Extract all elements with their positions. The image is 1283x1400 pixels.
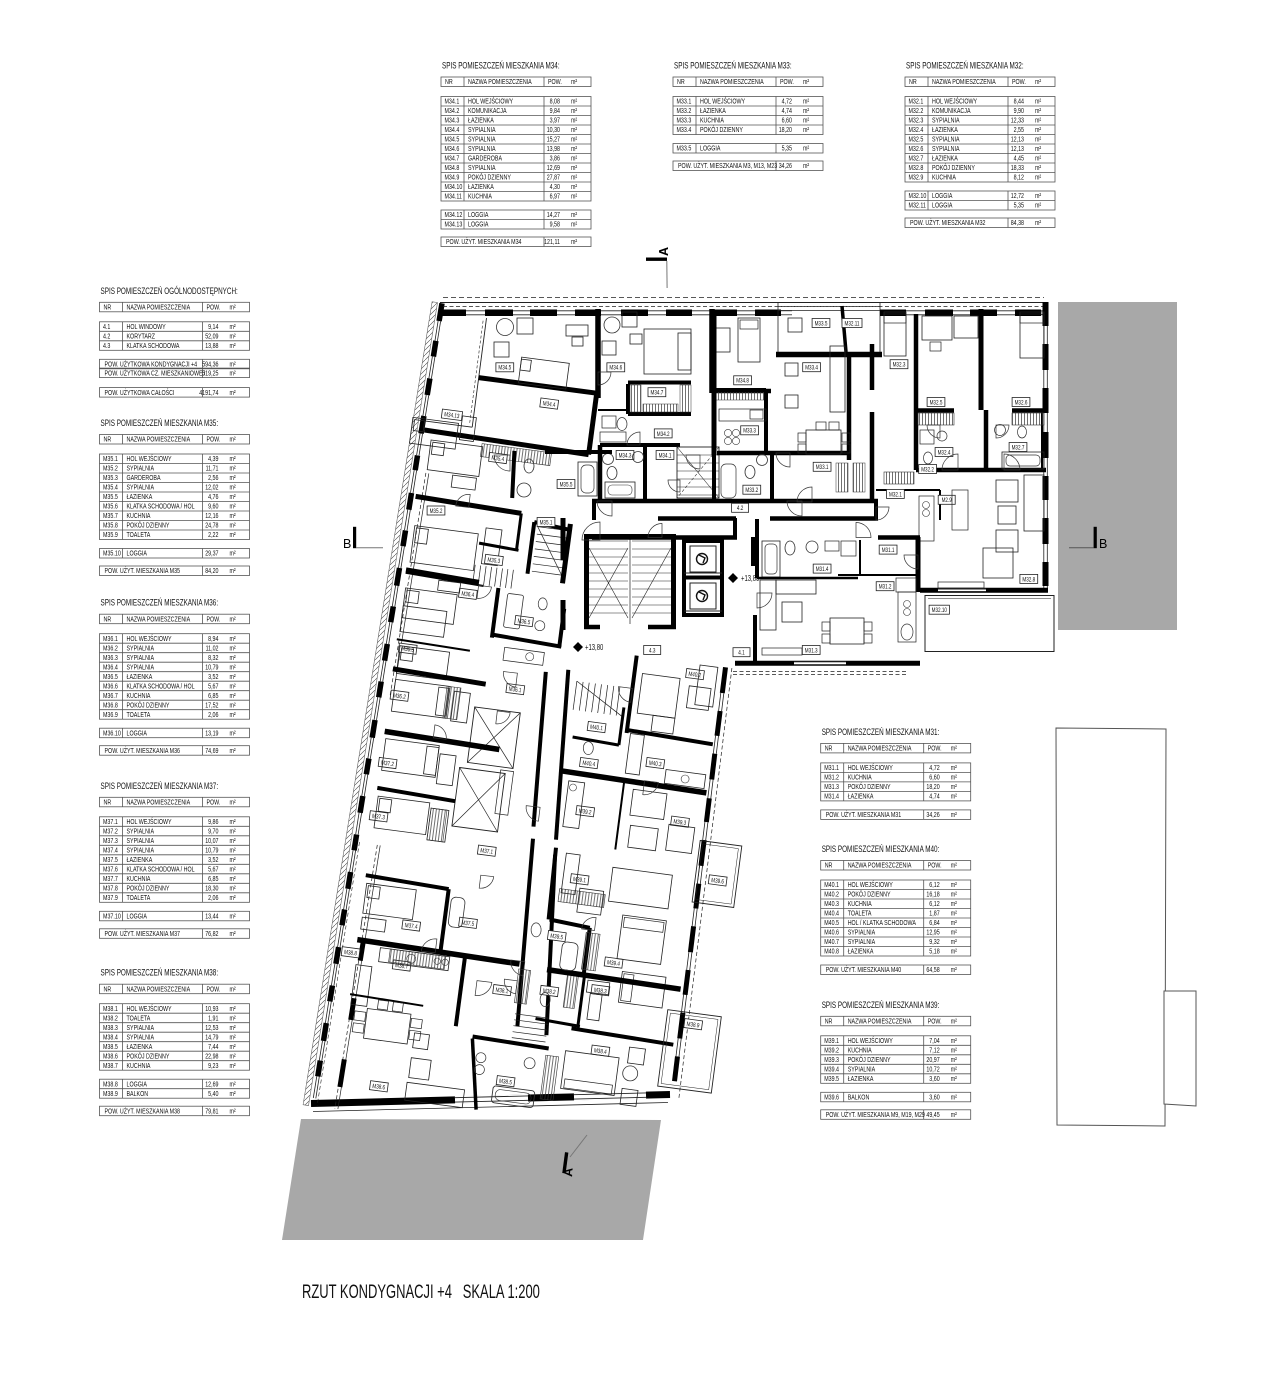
svg-text:BALKON: BALKON <box>848 1093 870 1102</box>
svg-text:RZUT KONDYGNACJI +4 SKALA 1:: RZUT KONDYGNACJI +4 SKALA 1:200 <box>302 1281 540 1303</box>
svg-text:M34.10: M34.10 <box>445 182 463 191</box>
svg-text:A: A <box>561 1167 576 1177</box>
svg-text:M32.4: M32.4 <box>938 449 951 456</box>
svg-text:M32.2: M32.2 <box>909 106 924 115</box>
svg-text:m²: m² <box>230 855 237 864</box>
svg-text:M35.6: M35.6 <box>103 502 118 511</box>
svg-text:5,18: 5,18 <box>929 947 939 956</box>
svg-text:M36.4: M36.4 <box>103 662 118 671</box>
svg-text:4,76: 4,76 <box>208 492 218 501</box>
svg-text:1,91: 1,91 <box>208 1013 218 1022</box>
svg-text:M34.9: M34.9 <box>445 173 460 182</box>
svg-text:KLATKA SCHODOWA / HOL: KLATKA SCHODOWA / HOL <box>127 502 195 511</box>
svg-text:M32.5: M32.5 <box>909 135 924 144</box>
svg-text:POW. UŻYTKOWA CAŁOŚCI: POW. UŻYTKOWA CAŁOŚCI <box>105 388 175 397</box>
svg-text:SYPIALNIA: SYPIALNIA <box>468 135 496 144</box>
svg-text:m²: m² <box>230 929 237 938</box>
svg-text:22,98: 22,98 <box>205 1051 218 1060</box>
svg-text:M34.5: M34.5 <box>498 365 511 372</box>
svg-text:M32.4: M32.4 <box>909 125 924 134</box>
svg-text:M38.6: M38.6 <box>103 1051 118 1060</box>
svg-text:M37.8: M37.8 <box>103 884 118 893</box>
svg-text:12,53: 12,53 <box>205 1023 218 1032</box>
svg-text:m²: m² <box>230 511 237 520</box>
svg-text:M36.9: M36.9 <box>103 710 118 719</box>
svg-text:POW.: POW. <box>548 77 562 86</box>
svg-text:m²: m² <box>230 1013 237 1022</box>
svg-text:4191,74: 4191,74 <box>199 388 218 397</box>
svg-text:M36.6: M36.6 <box>103 681 118 690</box>
svg-text:M34.5: M34.5 <box>445 135 460 144</box>
svg-text:NR: NR <box>825 861 833 870</box>
svg-text:m²: m² <box>571 210 578 219</box>
svg-text:5,35: 5,35 <box>782 144 792 153</box>
svg-text:POW. UŻYT. MIESZKANIA M37: POW. UŻYT. MIESZKANIA M37 <box>105 929 181 938</box>
svg-text:m²: m² <box>230 1032 237 1041</box>
svg-text:5,67: 5,67 <box>208 865 218 874</box>
svg-text:ŁAZIENKA: ŁAZIENKA <box>468 116 494 125</box>
svg-text:M31.2: M31.2 <box>879 584 892 591</box>
svg-text:m²: m² <box>951 947 958 956</box>
svg-text:m²: m² <box>951 1093 958 1102</box>
svg-text:m²: m² <box>230 1042 237 1051</box>
svg-text:M37.5: M37.5 <box>103 855 118 864</box>
svg-text:m²: m² <box>230 502 237 511</box>
svg-text:M40.5: M40.5 <box>824 918 839 927</box>
svg-text:m²: m² <box>951 782 958 791</box>
svg-text:NR: NR <box>909 77 917 86</box>
svg-text:M36.2: M36.2 <box>103 643 118 652</box>
svg-text:10,07: 10,07 <box>205 836 218 845</box>
svg-text:m²: m² <box>230 483 237 492</box>
svg-text:M34.11: M34.11 <box>445 192 462 201</box>
svg-text:519,25: 519,25 <box>202 368 218 377</box>
svg-text:m²: m² <box>230 388 237 397</box>
svg-text:TOALETA: TOALETA <box>127 710 151 719</box>
svg-text:HOL WINDOWY: HOL WINDOWY <box>127 322 166 331</box>
svg-text:M40.6: M40.6 <box>824 928 839 937</box>
svg-text:M32.10: M32.10 <box>932 607 948 614</box>
svg-text:POW. UŻYT. MIESZKANIA M9, M19,: POW. UŻYT. MIESZKANIA M9, M19, M29 <box>826 1110 925 1119</box>
svg-text:5,67: 5,67 <box>208 681 218 690</box>
svg-text:m²: m² <box>571 116 578 125</box>
svg-text:9,23: 9,23 <box>208 1061 218 1070</box>
svg-text:10,30: 10,30 <box>547 125 560 134</box>
svg-text:M38.9: M38.9 <box>103 1089 118 1098</box>
svg-text:m²: m² <box>951 763 958 772</box>
svg-text:POKÓJ DZIENNY: POKÓJ DZIENNY <box>127 1051 170 1060</box>
svg-text:HOL WEJŚCIOWY: HOL WEJŚCIOWY <box>127 454 172 463</box>
svg-text:SPIS POMIESZCZEŃ OGÓLNODOSTĘPN: SPIS POMIESZCZEŃ OGÓLNODOSTĘPNYCH: <box>101 286 238 297</box>
svg-text:m²: m² <box>230 884 237 893</box>
svg-text:KOMUNIKACJA: KOMUNIKACJA <box>932 106 971 115</box>
svg-text:4,45: 4,45 <box>1014 154 1024 163</box>
svg-text:M39.3: M39.3 <box>824 1055 839 1064</box>
svg-text:m²: m² <box>230 634 237 643</box>
svg-text:M35.8: M35.8 <box>103 521 118 530</box>
svg-text:M35.7: M35.7 <box>103 511 118 520</box>
svg-text:M34.8: M34.8 <box>445 163 460 172</box>
svg-text:M31.3: M31.3 <box>805 647 818 654</box>
svg-text:POW. UŻYT. MIESZKANIA M32: POW. UŻYT. MIESZKANIA M32 <box>910 218 986 227</box>
svg-text:KUCHNIA: KUCHNIA <box>127 874 151 883</box>
svg-text:M32.8: M32.8 <box>1022 576 1035 583</box>
svg-text:KLATKA SCHODOWA / HOL: KLATKA SCHODOWA / HOL <box>127 681 195 690</box>
svg-text:17,52: 17,52 <box>205 700 218 709</box>
svg-text:KUCHNIA: KUCHNIA <box>127 691 151 700</box>
svg-text:3,97: 3,97 <box>550 116 560 125</box>
svg-text:LOGGIA: LOGGIA <box>468 220 489 229</box>
svg-text:M40.7: M40.7 <box>824 937 839 946</box>
svg-text:m²: m² <box>230 681 237 690</box>
svg-text:m²: m² <box>571 192 578 201</box>
svg-text:m²: m² <box>230 566 237 575</box>
svg-text:m²: m² <box>803 144 810 153</box>
svg-text:M32.6: M32.6 <box>909 144 924 153</box>
svg-text:NR: NR <box>104 435 112 444</box>
svg-text:KUCHNIA: KUCHNIA <box>848 1046 872 1055</box>
svg-text:POKÓJ DZIENNY: POKÓJ DZIENNY <box>932 163 975 172</box>
svg-text:POW. UŻYTKOWA CZ. MIESZKANIOWE: POW. UŻYTKOWA CZ. MIESZKANIOWEJ <box>105 368 206 377</box>
svg-text:M35.3: M35.3 <box>103 473 118 482</box>
svg-text:TOALETA: TOALETA <box>127 893 151 902</box>
svg-text:m²: m² <box>230 691 237 700</box>
svg-text:M32.11: M32.11 <box>909 201 926 210</box>
svg-text:SYPIALNIA: SYPIALNIA <box>468 125 496 134</box>
svg-text:LOGGIA: LOGGIA <box>127 912 148 921</box>
svg-text:m²: m² <box>951 773 958 782</box>
svg-text:M31.1: M31.1 <box>882 547 895 554</box>
svg-text:6,60: 6,60 <box>782 116 792 125</box>
svg-text:12,13: 12,13 <box>1011 135 1024 144</box>
svg-text:M37.4: M37.4 <box>103 846 118 855</box>
svg-text:SYPIALNIA: SYPIALNIA <box>127 464 155 473</box>
svg-text:m²: m² <box>1035 97 1042 106</box>
svg-text:2,56: 2,56 <box>208 473 218 482</box>
svg-text:NR: NR <box>104 984 112 993</box>
svg-text:SYPIALNIA: SYPIALNIA <box>848 937 876 946</box>
svg-text:M32.1: M32.1 <box>889 491 902 498</box>
svg-text:POKÓJ DZIENNY: POKÓJ DZIENNY <box>848 1055 891 1064</box>
svg-text:M35.2: M35.2 <box>430 508 443 515</box>
svg-text:HOL WEJŚCIOWY: HOL WEJŚCIOWY <box>468 97 513 106</box>
svg-text:m²: m² <box>230 368 237 377</box>
svg-text:m²: m² <box>803 77 810 86</box>
svg-text:m²: m² <box>1035 144 1042 153</box>
svg-text:m²: m² <box>951 880 958 889</box>
svg-text:M32.6: M32.6 <box>1015 399 1028 406</box>
svg-text:m²: m² <box>951 1065 958 1074</box>
svg-text:6,85: 6,85 <box>208 691 218 700</box>
svg-text:m²: m² <box>1035 218 1042 227</box>
svg-text:m²: m² <box>230 893 237 902</box>
svg-text:24,78: 24,78 <box>205 521 218 530</box>
svg-text:GARDEROBA: GARDEROBA <box>468 154 502 163</box>
svg-text:M34.3: M34.3 <box>445 116 460 125</box>
svg-text:M34.2: M34.2 <box>657 431 670 438</box>
svg-text:29,37: 29,37 <box>205 549 218 558</box>
svg-text:m²: m² <box>951 1017 958 1026</box>
svg-text:4.1: 4.1 <box>738 650 745 657</box>
svg-text:NAZWA POMIESZCZENIA: NAZWA POMIESZCZENIA <box>127 303 191 312</box>
svg-text:7,12: 7,12 <box>929 1046 939 1055</box>
svg-text:m²: m² <box>230 653 237 662</box>
svg-text:m²: m² <box>951 792 958 801</box>
svg-text:m²: m² <box>230 728 237 737</box>
svg-text:KUCHNIA: KUCHNIA <box>127 1061 151 1070</box>
svg-text:NAZWA POMIESZCZENIA: NAZWA POMIESZCZENIA <box>700 77 764 86</box>
svg-text:8,32: 8,32 <box>208 653 218 662</box>
svg-text:POKÓJ DZIENNY: POKÓJ DZIENNY <box>127 884 170 893</box>
svg-text:SYPIALNIA: SYPIALNIA <box>468 144 496 153</box>
svg-text:3,60: 3,60 <box>929 1093 939 1102</box>
svg-text:NAZWA POMIESZCZENIA: NAZWA POMIESZCZENIA <box>848 1017 912 1026</box>
svg-text:10,93: 10,93 <box>205 1004 218 1013</box>
svg-text:m²: m² <box>571 97 578 106</box>
svg-text:11,02: 11,02 <box>206 643 219 652</box>
svg-text:3,52: 3,52 <box>208 855 218 864</box>
svg-text:SYPIALNIA: SYPIALNIA <box>127 836 155 845</box>
svg-text:m²: m² <box>230 530 237 539</box>
svg-text:LOGGIA: LOGGIA <box>932 201 953 210</box>
svg-text:m²: m² <box>230 1106 237 1115</box>
svg-text:NAZWA POMIESZCZENIA: NAZWA POMIESZCZENIA <box>127 798 191 807</box>
svg-text:12,02: 12,02 <box>205 483 218 492</box>
svg-text:M35.5: M35.5 <box>103 492 118 501</box>
svg-text:KLATKA SCHODOWA: KLATKA SCHODOWA <box>127 341 180 350</box>
svg-text:ŁAZIENKA: ŁAZIENKA <box>127 492 153 501</box>
svg-text:4.2: 4.2 <box>103 332 110 341</box>
svg-text:NR: NR <box>677 77 685 86</box>
svg-text:SPIS POMIESZCZEŃ MIESZKANIA M3: SPIS POMIESZCZEŃ MIESZKANIA M39: <box>822 1000 940 1011</box>
svg-text:M39.5: M39.5 <box>824 1074 839 1083</box>
svg-text:m²: m² <box>951 1046 958 1055</box>
svg-text:M34.6: M34.6 <box>609 365 622 372</box>
svg-text:SPIS POMIESZCZEŃ MIESZKANIA M3: SPIS POMIESZCZEŃ MIESZKANIA M34: <box>442 61 560 72</box>
svg-text:+13,80: +13,80 <box>585 643 604 652</box>
svg-text:M32.2: M32.2 <box>921 466 934 473</box>
svg-text:9,32: 9,32 <box>929 937 939 946</box>
svg-text:m²: m² <box>230 303 237 312</box>
svg-text:KOMUNIKACJA: KOMUNIKACJA <box>468 106 507 115</box>
svg-text:m²: m² <box>230 341 237 350</box>
svg-text:ŁAZIENKA: ŁAZIENKA <box>700 106 726 115</box>
svg-text:GARDEROBA: GARDEROBA <box>127 473 161 482</box>
svg-text:M35.5: M35.5 <box>560 481 573 488</box>
svg-text:m²: m² <box>803 106 810 115</box>
svg-text:m²: m² <box>230 322 237 331</box>
svg-text:m²: m² <box>230 700 237 709</box>
svg-text:M33.5: M33.5 <box>815 320 828 327</box>
svg-text:m²: m² <box>803 116 810 125</box>
svg-text:NAZWA POMIESZCZENIA: NAZWA POMIESZCZENIA <box>127 614 191 623</box>
svg-text:TOALETA: TOALETA <box>127 1013 151 1022</box>
svg-text:121,11: 121,11 <box>544 237 560 246</box>
svg-text:64,58: 64,58 <box>926 965 939 974</box>
svg-text:SYPIALNIA: SYPIALNIA <box>127 1023 155 1032</box>
svg-text:M38.1: M38.1 <box>103 1004 118 1013</box>
svg-text:M37.9: M37.9 <box>103 893 118 902</box>
svg-text:M37.2: M37.2 <box>103 827 118 836</box>
svg-text:m²: m² <box>230 464 237 473</box>
svg-text:m²: m² <box>230 662 237 671</box>
svg-text:POW.: POW. <box>207 303 221 312</box>
svg-text:ŁAZIENKA: ŁAZIENKA <box>932 125 958 134</box>
svg-text:M37.6: M37.6 <box>103 865 118 874</box>
svg-text:M40.3: M40.3 <box>824 899 839 908</box>
svg-text:M34.13: M34.13 <box>445 220 463 229</box>
svg-text:SPIS POMIESZCZEŃ MIESZKANIA M4: SPIS POMIESZCZEŃ MIESZKANIA M40: <box>822 844 940 855</box>
svg-text:m²: m² <box>571 135 578 144</box>
svg-text:M38.5: M38.5 <box>103 1042 118 1051</box>
svg-text:6,12: 6,12 <box>929 899 939 908</box>
svg-text:M33.2: M33.2 <box>677 106 692 115</box>
svg-text:74,69: 74,69 <box>205 746 218 755</box>
svg-text:M31.2: M31.2 <box>824 773 839 782</box>
svg-text:m²: m² <box>571 144 578 153</box>
svg-text:LOGGIA: LOGGIA <box>468 210 489 219</box>
svg-text:POW. UŻYT. MIESZKANIA M3, M13,: POW. UŻYT. MIESZKANIA M3, M13, M23 <box>678 161 777 170</box>
svg-text:POKÓJ DZIENNY: POKÓJ DZIENNY <box>700 125 743 134</box>
svg-text:3,86: 3,86 <box>550 154 560 163</box>
svg-text:4,30: 4,30 <box>550 182 560 191</box>
svg-text:LOGGIA: LOGGIA <box>700 144 721 153</box>
svg-text:18,33: 18,33 <box>1011 163 1024 172</box>
svg-text:ŁAZIENKA: ŁAZIENKA <box>848 947 874 956</box>
svg-text:M38.8: M38.8 <box>103 1079 118 1088</box>
svg-text:POKÓJ DZIENNY: POKÓJ DZIENNY <box>848 890 891 899</box>
svg-text:M33.2: M33.2 <box>745 487 758 494</box>
svg-text:POW. UŻYT. MIESZKANIA M36: POW. UŻYT. MIESZKANIA M36 <box>105 746 181 755</box>
svg-text:SPIS POMIESZCZEŃ MIESZKANIA M3: SPIS POMIESZCZEŃ MIESZKANIA M32: <box>906 61 1024 72</box>
svg-text:M33.4: M33.4 <box>677 125 692 134</box>
svg-text:SYPIALNIA: SYPIALNIA <box>848 928 876 937</box>
svg-text:M39.2: M39.2 <box>824 1046 839 1055</box>
svg-text:M33.1: M33.1 <box>677 97 692 106</box>
svg-text:34,26: 34,26 <box>779 161 792 170</box>
svg-text:18,30: 18,30 <box>205 884 218 893</box>
svg-text:NR: NR <box>104 303 112 312</box>
svg-text:13,44: 13,44 <box>205 912 218 921</box>
svg-text:NAZWA POMIESZCZENIA: NAZWA POMIESZCZENIA <box>468 77 532 86</box>
svg-text:m²: m² <box>230 454 237 463</box>
svg-text:LOGGIA: LOGGIA <box>932 191 953 200</box>
svg-text:6,97: 6,97 <box>550 192 560 201</box>
svg-text:M35.1: M35.1 <box>103 454 118 463</box>
svg-text:m²: m² <box>571 173 578 182</box>
svg-text:M34.7: M34.7 <box>445 154 460 163</box>
svg-text:M34.3: M34.3 <box>619 452 632 459</box>
svg-text:m²: m² <box>803 125 810 134</box>
svg-text:POW.: POW. <box>928 1017 942 1026</box>
svg-text:SYPIALNIA: SYPIALNIA <box>848 1065 876 1074</box>
svg-text:m²: m² <box>571 237 578 246</box>
svg-text:4.1: 4.1 <box>103 322 110 331</box>
svg-text:m²: m² <box>951 965 958 974</box>
svg-text:27,87: 27,87 <box>547 173 560 182</box>
svg-text:M33.3: M33.3 <box>743 428 756 435</box>
svg-text:SYPIALNIA: SYPIALNIA <box>127 643 155 652</box>
svg-text:BALKON: BALKON <box>127 1089 149 1098</box>
svg-text:m²: m² <box>571 182 578 191</box>
svg-text:12,69: 12,69 <box>547 163 560 172</box>
svg-text:4,74: 4,74 <box>782 106 792 115</box>
svg-text:M36.1: M36.1 <box>103 634 118 643</box>
svg-text:m²: m² <box>230 746 237 755</box>
svg-text:m²: m² <box>951 1074 958 1083</box>
svg-text:HOL WEJŚCIOWY: HOL WEJŚCIOWY <box>848 1036 893 1045</box>
svg-text:KUCHNIA: KUCHNIA <box>848 899 872 908</box>
svg-text:SYPIALNIA: SYPIALNIA <box>932 144 960 153</box>
svg-text:15,27: 15,27 <box>547 135 560 144</box>
svg-text:TOALETA: TOALETA <box>848 909 872 918</box>
svg-text:POW.: POW. <box>207 435 221 444</box>
svg-text:m²: m² <box>1035 77 1042 86</box>
svg-text:M36.5: M36.5 <box>103 672 118 681</box>
svg-text:8,12: 8,12 <box>1014 173 1024 182</box>
svg-text:76,82: 76,82 <box>205 929 218 938</box>
svg-text:SPIS POMIESZCZEŃ MIESZKANIA M3: SPIS POMIESZCZEŃ MIESZKANIA M38: <box>101 968 219 979</box>
svg-text:84,38: 84,38 <box>1011 218 1024 227</box>
svg-text:M32.8: M32.8 <box>909 163 924 172</box>
svg-text:m²: m² <box>230 643 237 652</box>
svg-text:M31.4: M31.4 <box>824 792 839 801</box>
svg-text:M36.3: M36.3 <box>103 653 118 662</box>
svg-text:M35.4: M35.4 <box>103 483 118 492</box>
svg-text:M38.4: M38.4 <box>103 1032 118 1041</box>
svg-text:POW. UŻYT. MIESZKANIA M38: POW. UŻYT. MIESZKANIA M38 <box>105 1106 181 1115</box>
svg-text:ŁAZIENKA: ŁAZIENKA <box>848 1074 874 1083</box>
svg-text:M33.1: M33.1 <box>816 464 829 471</box>
svg-text:M37.3: M37.3 <box>103 836 118 845</box>
svg-text:SPIS POMIESZCZEŃ MIESZKANIA M3: SPIS POMIESZCZEŃ MIESZKANIA M35: <box>101 418 219 429</box>
svg-text:m²: m² <box>1035 135 1042 144</box>
svg-text:SYPIALNIA: SYPIALNIA <box>127 827 155 836</box>
svg-text:m²: m² <box>571 125 578 134</box>
svg-text:34,26: 34,26 <box>926 810 939 819</box>
svg-text:13,19: 13,19 <box>205 728 218 737</box>
svg-text:m²: m² <box>1035 106 1042 115</box>
svg-text:M38.3: M38.3 <box>103 1023 118 1032</box>
svg-text:M34.6: M34.6 <box>445 144 460 153</box>
svg-text:m²: m² <box>951 1110 958 1119</box>
svg-text:M32.3: M32.3 <box>893 362 906 369</box>
svg-text:m²: m² <box>951 928 958 937</box>
svg-text:POW.: POW. <box>928 744 942 753</box>
svg-text:6,12: 6,12 <box>929 880 939 889</box>
svg-text:m²: m² <box>803 97 810 106</box>
svg-text:SPIS POMIESZCZEŃ MIESZKANIA M3: SPIS POMIESZCZEŃ MIESZKANIA M37: <box>101 781 219 792</box>
svg-text:NR: NR <box>445 77 453 86</box>
svg-text:9,60: 9,60 <box>208 502 218 511</box>
svg-text:4.2: 4.2 <box>737 505 744 512</box>
svg-text:TOALETA: TOALETA <box>127 530 151 539</box>
svg-text:m²: m² <box>1035 116 1042 125</box>
svg-text:m²: m² <box>951 909 958 918</box>
svg-text:M34.2: M34.2 <box>445 106 460 115</box>
svg-text:m²: m² <box>230 1004 237 1013</box>
svg-text:m²: m² <box>230 710 237 719</box>
svg-text:9,14: 9,14 <box>208 322 218 331</box>
svg-text:M36.8: M36.8 <box>103 700 118 709</box>
svg-text:M34.1: M34.1 <box>659 452 672 459</box>
svg-text:m²: m² <box>1035 154 1042 163</box>
svg-text:m²: m² <box>230 984 237 993</box>
svg-text:M40.2: M40.2 <box>824 890 839 899</box>
svg-text:POW.: POW. <box>780 77 794 86</box>
svg-text:2,55: 2,55 <box>1014 125 1024 134</box>
svg-text:m²: m² <box>571 106 578 115</box>
